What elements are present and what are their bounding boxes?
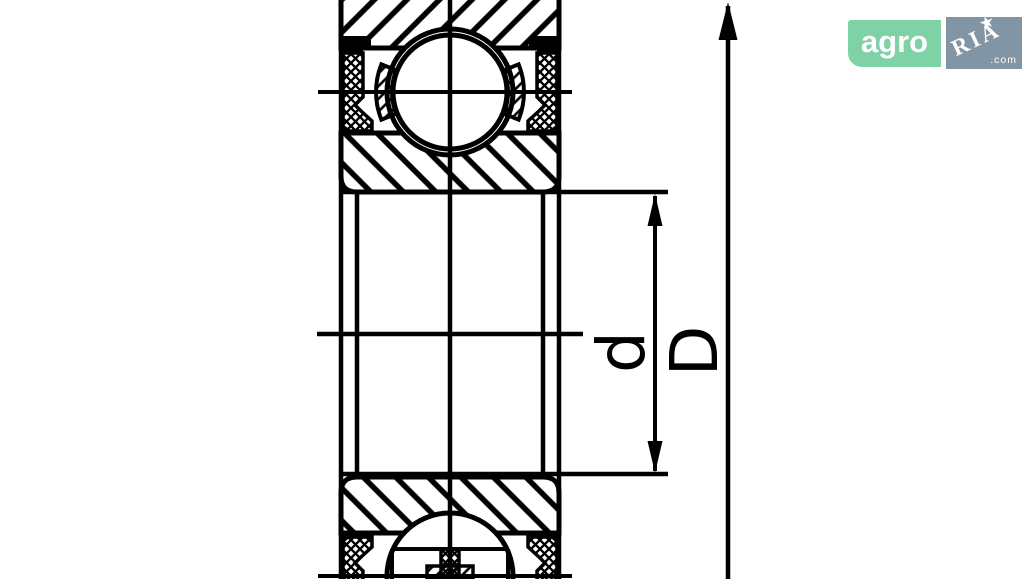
dimension-bore-d: d bbox=[583, 194, 663, 473]
arrowhead-down bbox=[648, 441, 663, 473]
agroria-logo: agro ★ RIA .com bbox=[848, 17, 1022, 69]
outer-diameter-label: D bbox=[656, 326, 733, 377]
bore-diameter-label: d bbox=[583, 331, 660, 373]
dimension-outer-D: D bbox=[656, 2, 738, 579]
arrowhead-up bbox=[719, 2, 738, 40]
ria-com-text: .com bbox=[990, 54, 1017, 66]
arrowhead-up bbox=[648, 194, 663, 226]
agro-logo-block: agro bbox=[848, 20, 941, 67]
ria-logo-block: ★ RIA .com bbox=[946, 17, 1022, 69]
seal-left-bottom bbox=[343, 537, 372, 579]
bearing-cross-section-drawing: d D bbox=[0, 0, 1030, 579]
bearing-drawing-page: d D agro ★ RIA .com bbox=[0, 0, 1030, 579]
agro-logo-text: agro bbox=[861, 24, 928, 63]
seal-right-bottom bbox=[528, 537, 557, 579]
